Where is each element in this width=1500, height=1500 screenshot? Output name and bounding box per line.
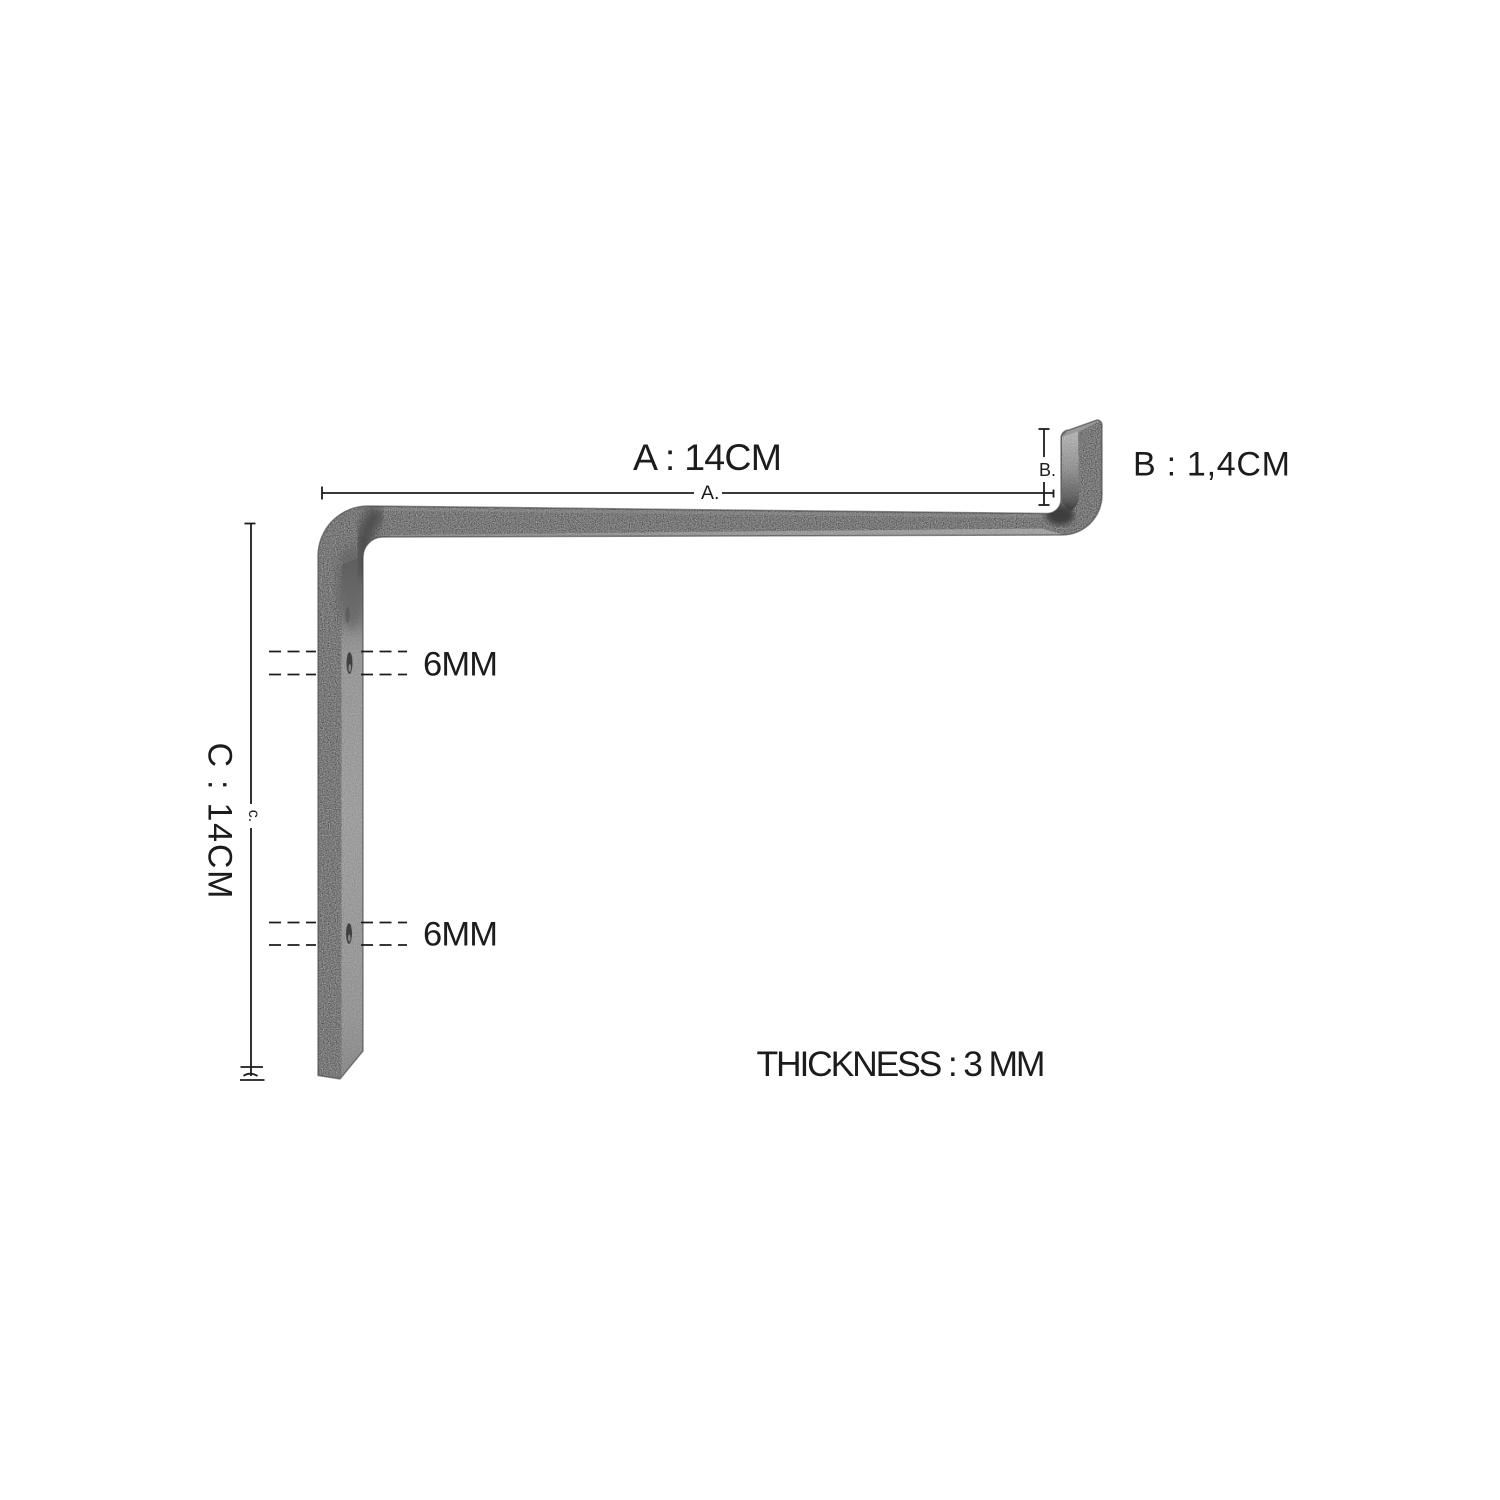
svg-text:6MM: 6MM bbox=[423, 646, 498, 684]
svg-text:B : 1,4CM: B : 1,4CM bbox=[1133, 446, 1290, 484]
svg-text:c.: c. bbox=[245, 810, 262, 822]
svg-text:THICKNESS : 3 MM: THICKNESS : 3 MM bbox=[757, 1044, 1046, 1084]
svg-text:A.: A. bbox=[701, 482, 719, 504]
svg-text:A : 14CM: A : 14CM bbox=[633, 436, 782, 478]
svg-text:6MM: 6MM bbox=[423, 916, 498, 954]
svg-text:C : 14CM: C : 14CM bbox=[201, 743, 239, 899]
svg-text:B.: B. bbox=[1039, 460, 1056, 480]
